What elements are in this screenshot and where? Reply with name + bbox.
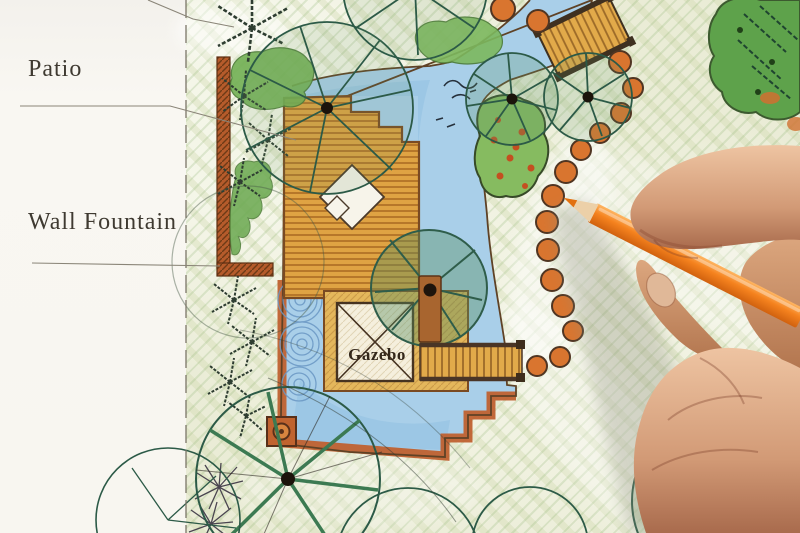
- tree-arc: [472, 487, 588, 533]
- boardwalk-dock: [420, 340, 525, 382]
- gazebo-tree: [371, 230, 487, 346]
- pond-corner-post: [267, 417, 296, 446]
- wall-fountain-label: Wall Fountain: [28, 210, 177, 234]
- tree-margin-overlap: [96, 448, 240, 533]
- shrub: [230, 161, 272, 255]
- tree: [544, 53, 632, 141]
- index-finger: [630, 145, 800, 249]
- plan-drawing: [0, 0, 800, 533]
- leader-line-wall-fountain: [32, 263, 220, 266]
- corner-shrub-mass: [709, 0, 800, 131]
- patio-label: Patio: [28, 57, 82, 81]
- screenshot-photo: Patio Wall Fountain Gazebo: [0, 0, 800, 533]
- gazebo-label: Gazebo: [341, 345, 413, 365]
